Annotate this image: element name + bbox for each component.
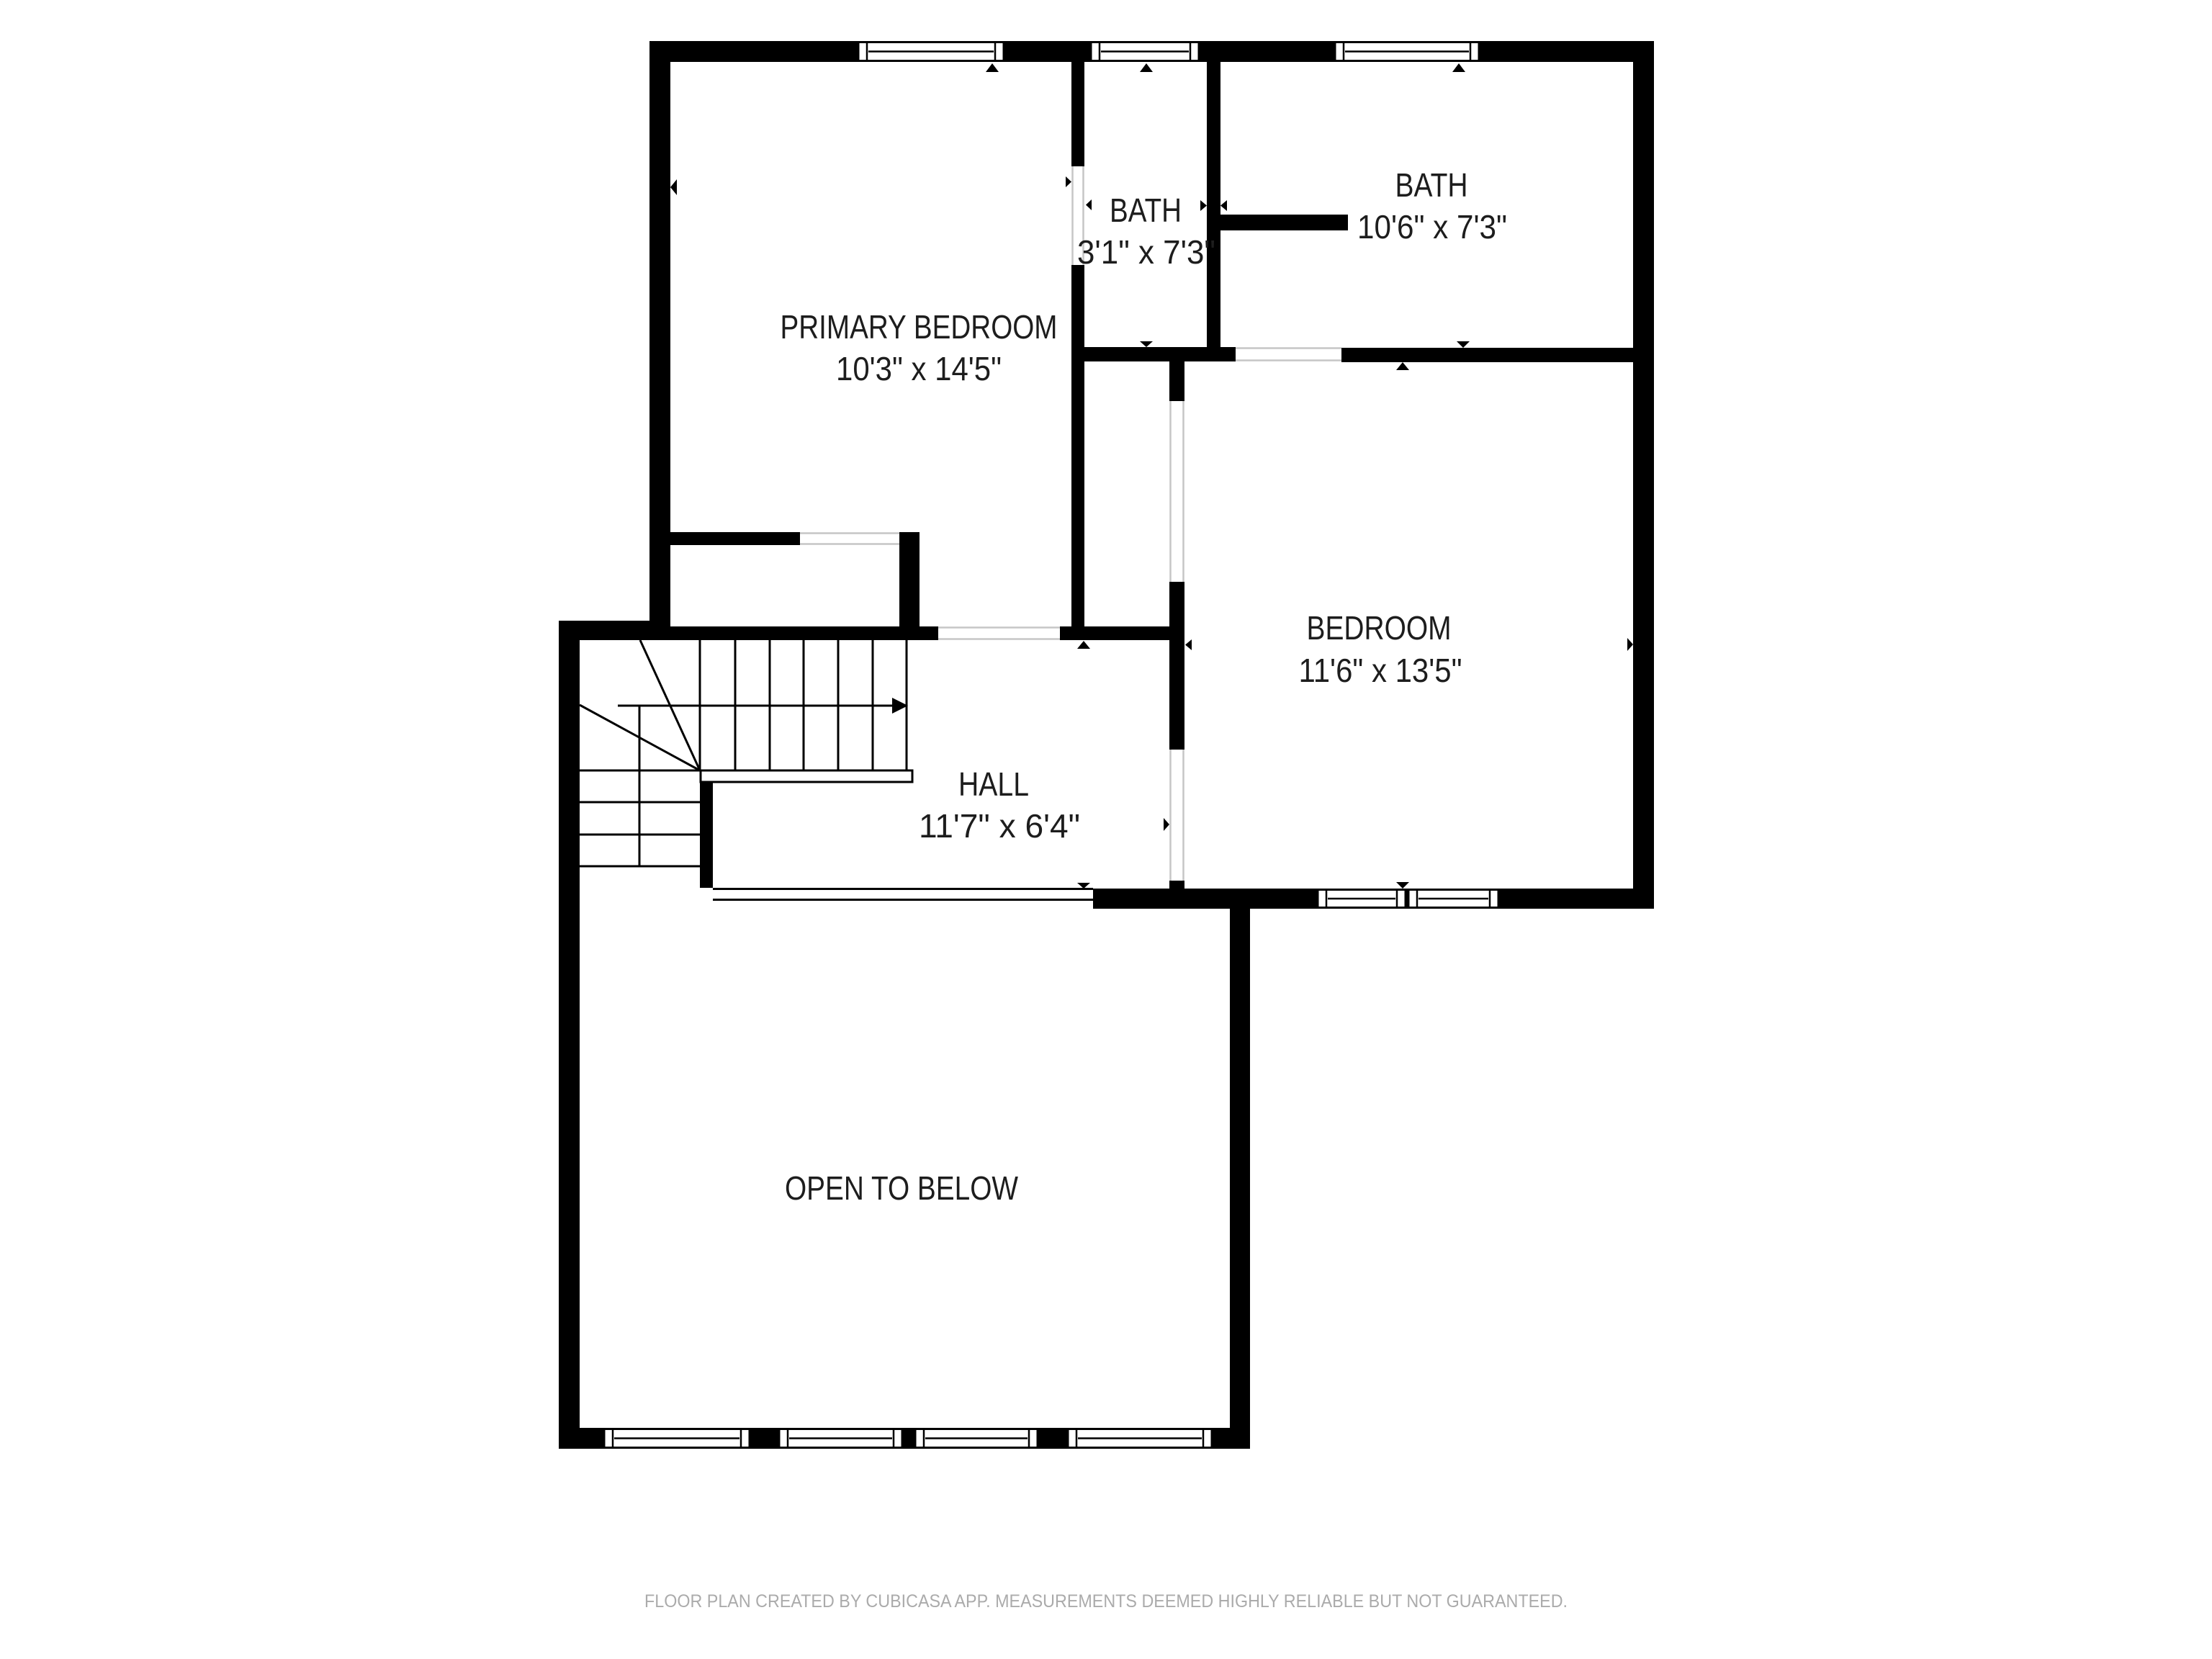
svg-text:11'6" x 13'5": 11'6" x 13'5": [1299, 652, 1462, 689]
svg-text:BEDROOM: BEDROOM: [1307, 609, 1452, 647]
svg-text:3'1" x 7'3": 3'1" x 7'3": [1077, 233, 1215, 271]
svg-text:10'6" x 7'3": 10'6" x 7'3": [1357, 208, 1507, 246]
svg-text:BATH: BATH: [1110, 192, 1182, 229]
svg-text:OPEN TO BELOW: OPEN TO BELOW: [785, 1169, 1018, 1207]
svg-text:BATH: BATH: [1395, 166, 1468, 204]
svg-text:11'7" x 6'4": 11'7" x 6'4": [919, 807, 1080, 845]
svg-text:FLOOR PLAN CREATED BY CUBICASA: FLOOR PLAN CREATED BY CUBICASA APP. MEAS…: [644, 1591, 1568, 1611]
svg-text:HALL: HALL: [958, 765, 1029, 803]
svg-text:PRIMARY BEDROOM: PRIMARY BEDROOM: [781, 308, 1058, 346]
svg-text:10'3" x 14'5": 10'3" x 14'5": [836, 350, 1002, 387]
